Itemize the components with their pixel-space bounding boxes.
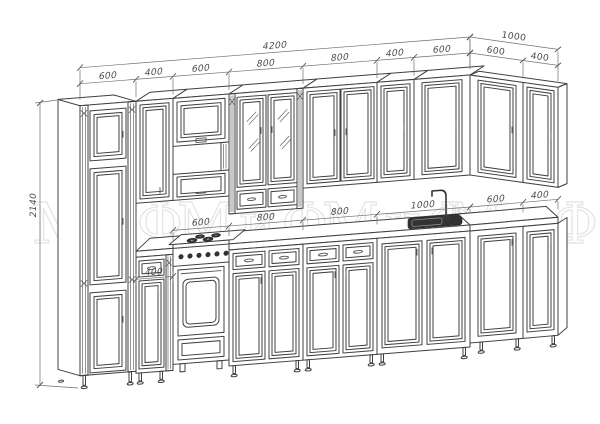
dim-top-3: 600 [192, 63, 210, 74]
dim-top-1: 600 [99, 71, 117, 82]
dim-top-6: 400 [386, 48, 404, 59]
dim-return-counter-2: 400 [531, 190, 549, 202]
dim-counter-2: 800 [257, 212, 275, 223]
dim-counter-3: 800 [331, 207, 349, 218]
end-base-side [558, 218, 567, 336]
kitchen-elevation-drawing: МиФ МиФ МиФ МиФ [0, 0, 600, 424]
dim-counter-1: 600 [192, 217, 210, 228]
base-cabinet-800-b [303, 238, 377, 371]
tall-cabinet [58, 93, 136, 390]
base-cabinet-800-a [229, 244, 303, 377]
dim-height: 2140 [29, 193, 39, 218]
dim-top-4: 800 [257, 58, 275, 69]
wall-cabinet-end-400 [523, 77, 567, 188]
return-base: 600 400 [458, 189, 567, 356]
dim-counter-4: 1000 [411, 200, 435, 212]
base-cabinet-end-400 [523, 218, 567, 339]
base-cabinet-corner-return-600 [470, 226, 523, 343]
dim-return-counter-1: 600 [487, 194, 505, 206]
base-cabinet-sink-1000 [377, 231, 470, 366]
dim-top-7: 600 [433, 45, 451, 56]
end-cabinet-side [558, 82, 567, 188]
drawing-svg: МиФ МиФ МиФ МиФ [0, 0, 600, 424]
dim-top-2: 400 [145, 67, 163, 78]
dim-total-width: 4200 [263, 40, 287, 52]
dim-small-left: 400 [145, 267, 163, 278]
dim-top-5: 800 [331, 53, 349, 64]
wall-cabinet-corner-return-600 [470, 75, 523, 182]
